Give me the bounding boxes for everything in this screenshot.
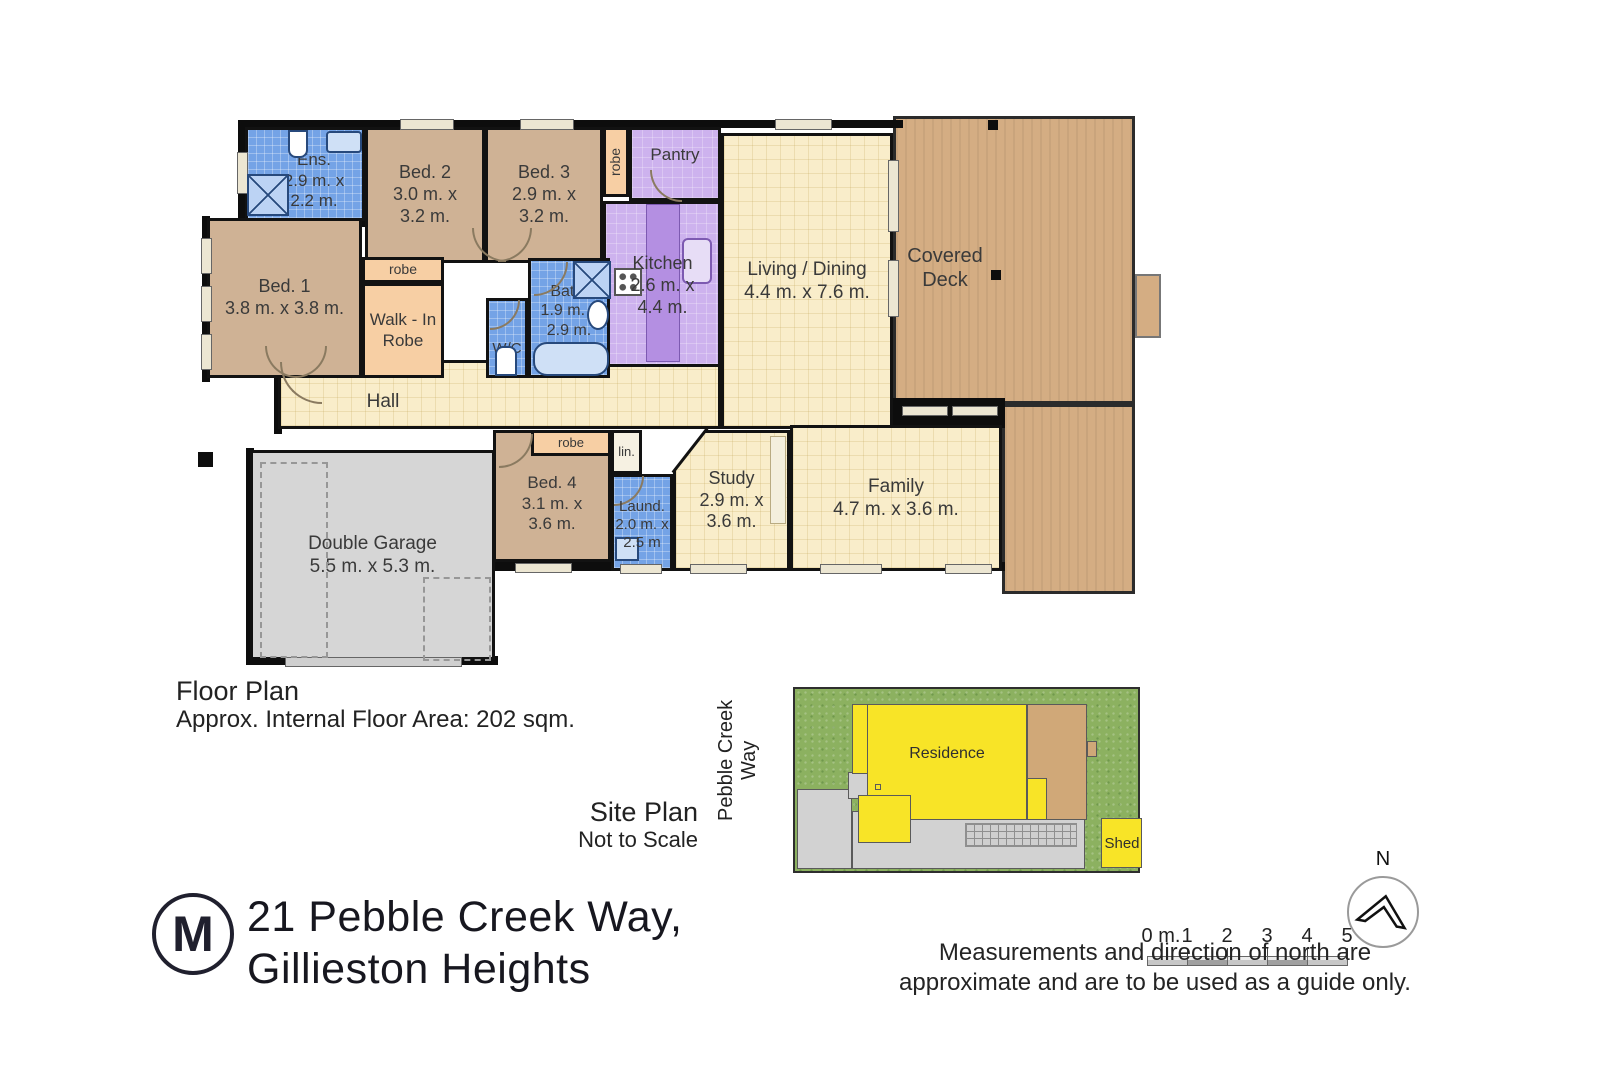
room-bed2: Bed. 2 3.0 m. x 3.2 m.: [365, 127, 485, 263]
window: [201, 286, 212, 322]
room-label-robe-mid: robe: [389, 261, 417, 278]
deck-post: [991, 270, 1001, 280]
deck-post: [988, 120, 998, 130]
room-covered-deck-lower: [1002, 404, 1135, 594]
room-robe-top: robe: [603, 127, 629, 197]
site-residence-rear: [1027, 778, 1047, 820]
garage-dashed-area: [260, 462, 328, 658]
agency-logo-letter: M: [172, 905, 214, 963]
room-label-bed3: Bed. 3 2.9 m. x 3.2 m.: [512, 162, 576, 228]
room-label-bed4: Bed. 4 3.1 m. x 3.6 m.: [522, 473, 582, 535]
deck-steps: [1135, 274, 1161, 338]
window: [902, 406, 948, 416]
site-plan-title: Site Plan: [505, 797, 698, 828]
room-label-linen: lin.: [618, 444, 635, 460]
room-label-study: Study 2.9 m. x 3.6 m.: [699, 468, 763, 534]
window: [952, 406, 998, 416]
room-robe-bed4: robe: [531, 430, 611, 456]
basin-icon: [587, 300, 609, 330]
room-label-family: Family 4.7 m. x 3.6 m.: [833, 475, 959, 521]
room-label-robe-top: robe: [607, 148, 624, 176]
room-linen: lin.: [611, 430, 642, 474]
address-line1: 21 Pebble Creek Way,: [247, 893, 682, 942]
room-label-robe-bed4: robe: [558, 435, 584, 451]
window: [820, 564, 882, 574]
agency-logo: M: [152, 893, 234, 975]
window: [888, 160, 899, 232]
site-pavers: [965, 823, 1077, 847]
wall-pier: [198, 452, 213, 467]
window: [690, 564, 747, 574]
floor-plan-title: Floor Plan: [176, 676, 299, 707]
window: [520, 119, 574, 130]
room-label-wir: Walk - In Robe: [370, 310, 436, 351]
window: [775, 119, 832, 130]
room-covered-deck-upper: [893, 116, 1135, 404]
window: [201, 238, 212, 274]
floorplan-page: Covered Deck Ens. 2.9 m. x 2.2 m. Bed. 2…: [0, 0, 1620, 1080]
study-desk: [770, 436, 786, 524]
bathtub-icon: [533, 342, 609, 376]
garage-dashed-area: [423, 577, 491, 661]
north-label: N: [1358, 848, 1408, 871]
site-deck-steps: [1087, 741, 1097, 757]
window: [515, 563, 572, 573]
shower-icon: [247, 174, 289, 216]
window: [620, 564, 662, 574]
site-marker: [875, 784, 881, 790]
window: [888, 260, 899, 317]
room-label-bed2: Bed. 2 3.0 m. x 3.2 m.: [393, 162, 457, 228]
north-chevron: [1349, 878, 1417, 946]
site-plan-subtitle: Not to Scale: [505, 827, 698, 853]
room-label-bed1: Bed. 1 3.8 m. x 3.8 m.: [225, 276, 344, 320]
window: [201, 334, 212, 370]
room-label-pantry: Pantry: [650, 145, 699, 166]
disclaimer-text: Measurements and direction of north are …: [860, 938, 1450, 998]
toilet-icon: [288, 130, 308, 158]
site-plan: Residence Shed: [793, 687, 1140, 873]
site-driveway: [797, 789, 852, 869]
room-walk-in-robe: Walk - In Robe: [362, 283, 444, 378]
shower-icon: [573, 261, 611, 299]
street-name-label: Pebble Creek Way: [715, 686, 745, 834]
address-line2: Gillieston Heights: [247, 945, 591, 994]
floor-plan: Covered Deck Ens. 2.9 m. x 2.2 m. Bed. 2…: [190, 100, 1165, 675]
stove-icon: [614, 268, 642, 296]
room-label-living: Living / Dining 4.4 m. x 7.6 m.: [744, 258, 870, 304]
window: [400, 119, 454, 130]
room-robe-mid: robe: [362, 257, 444, 283]
site-shed: [1101, 818, 1142, 868]
fridge-icon: [682, 238, 712, 284]
floor-plan-subtitle: Approx. Internal Floor Area: 202 sqm.: [176, 706, 575, 734]
toilet-icon: [495, 346, 517, 376]
room-label-ensuite: Ens. 2.9 m. x 2.2 m.: [284, 150, 344, 212]
room-family: Family 4.7 m. x 3.6 m.: [790, 425, 1002, 571]
room-living-dining: Living / Dining 4.4 m. x 7.6 m.: [721, 133, 893, 429]
site-residence-wing: [852, 704, 868, 774]
window: [945, 564, 992, 574]
site-residence-lower: [858, 795, 911, 843]
laundry-tub-icon: [615, 537, 639, 561]
basin-icon: [326, 131, 362, 153]
kitchen-counter: [646, 204, 680, 362]
